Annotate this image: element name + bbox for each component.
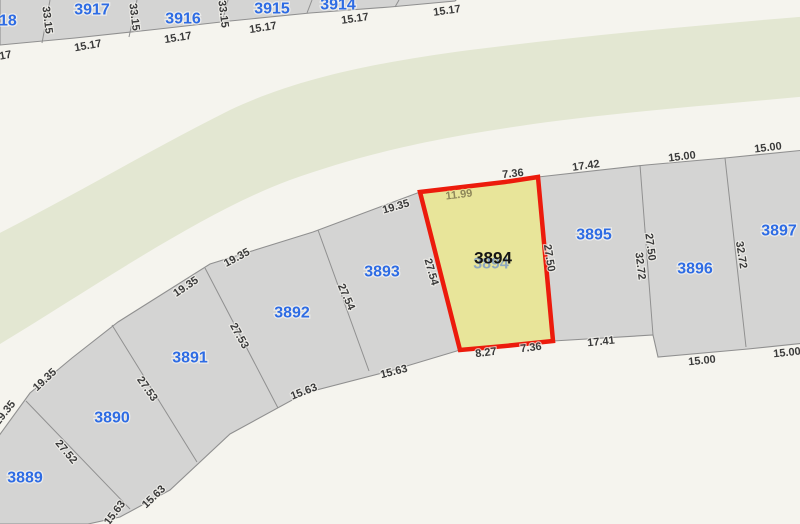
parcel-label-3896-11: 3896 <box>677 261 713 278</box>
parcel-label-3890-6: 3890 <box>94 410 130 427</box>
parcel-label-3893-9: 3893 <box>364 264 400 281</box>
parcel-map[interactable]: 33.1533.1533.1515.1715.1715.1715.1715.17… <box>0 0 800 524</box>
parcel-label-3916-2: 3916 <box>165 11 201 28</box>
parcel-label-3891-7: 3891 <box>172 350 208 367</box>
parcel-label-3914-4: 3914 <box>320 0 356 14</box>
parcel-label-3915-3: 3915 <box>254 1 290 18</box>
parcel-label-3889-5: 3889 <box>7 470 43 487</box>
parcel-label-3895-10: 3895 <box>576 227 612 244</box>
parcel-label-3892-8: 3892 <box>274 305 310 322</box>
dimension-label-7.36-15: 7.36 <box>502 167 525 181</box>
parcel-label-3917-1: 3917 <box>74 2 110 19</box>
parcel-label-3897-12: 3897 <box>761 223 797 240</box>
parcel-label-3918-0: 3918 <box>0 13 17 30</box>
map-viewport[interactable]: 33.1533.1533.1515.1715.1715.1715.1715.17… <box>0 0 800 524</box>
parcel-label-3894-14: 3894 <box>474 249 512 268</box>
